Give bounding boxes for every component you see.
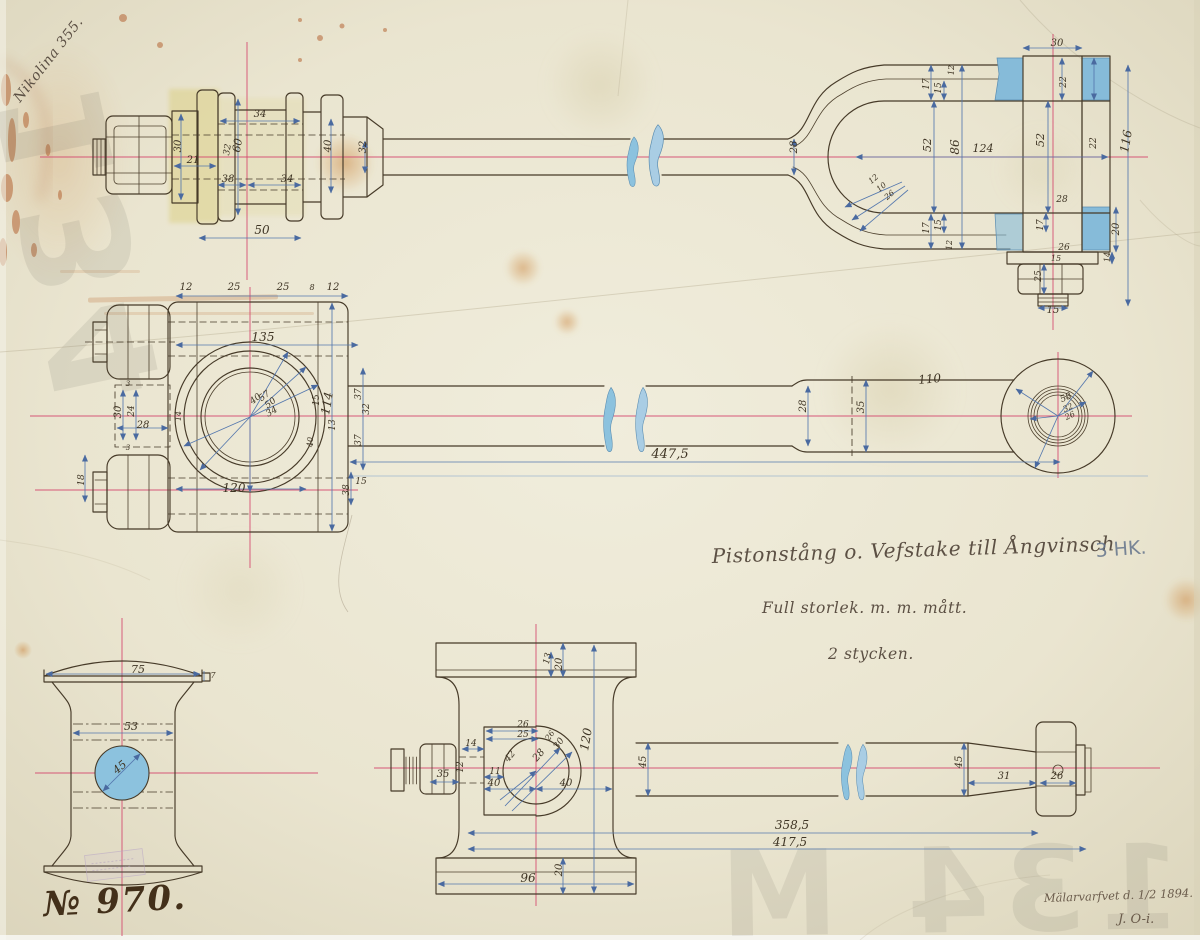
dimension-label: 110 <box>918 371 942 387</box>
dimension-label: 20 <box>554 657 565 671</box>
dimension-label: 37 <box>354 388 364 400</box>
dimension-label: 14 <box>1103 252 1112 262</box>
dimension-label: 22 <box>1059 76 1069 89</box>
dimension-label: 30 <box>173 139 184 152</box>
dimension-label: 124 <box>973 142 994 155</box>
dimension-label: 11 <box>489 767 500 777</box>
dimension-label: 31 <box>998 771 1011 782</box>
scale-note: Full storlek. m. m. mått. <box>761 599 967 617</box>
dimension-label: 18 <box>77 474 87 486</box>
dimension-label: 15 <box>1051 254 1061 263</box>
dimension-label: 17 <box>1036 219 1046 231</box>
dimension-label: 12 <box>945 240 954 250</box>
dimension-label: 21 <box>186 155 200 166</box>
dimension-label: 20 <box>1111 222 1122 236</box>
dimension-label: 32 <box>358 141 369 154</box>
dimension-label: 34 <box>281 174 294 185</box>
dimension-label: 26 <box>516 720 529 730</box>
dimension-label: 32 <box>362 403 372 415</box>
dimension-label: 52 <box>921 138 934 152</box>
dimension-label: 28 <box>798 400 809 414</box>
dimension-label: 20 <box>554 863 565 877</box>
dimension-label: 35 <box>856 401 867 414</box>
dimension-label: 86 <box>948 139 962 155</box>
quantity-note: 2 stycken. <box>827 645 914 663</box>
drawing-sheet: 134 134 M <box>0 0 1200 940</box>
dimension-label: 40 <box>487 778 501 789</box>
dimension-label: 135 <box>252 330 275 344</box>
dimension-label: 22 <box>1089 137 1099 150</box>
dimension-label: 45 <box>954 756 965 770</box>
dimension-label: 417,5 <box>772 835 807 849</box>
dimension-label: 3 <box>126 380 131 388</box>
drawing-number: № 970. <box>40 878 188 926</box>
dimension-label: 17 <box>922 222 932 234</box>
dimension-label: 12 <box>180 282 193 293</box>
dimension-label: 12 <box>947 65 956 75</box>
dimension-label: 447,5 <box>650 447 688 462</box>
dimension-label: 12 <box>456 761 466 773</box>
dimension-label: 13 <box>328 419 338 431</box>
dimension-label: 26 <box>1050 771 1064 782</box>
signature-initials: J. O-i. <box>1115 912 1154 927</box>
dimension-label: 25 <box>227 282 241 293</box>
dimension-label: 38 <box>222 174 235 185</box>
dimension-label: 26 <box>1057 243 1070 253</box>
dimension-label: 40 <box>323 139 334 153</box>
dimension-label: 34 <box>254 109 267 120</box>
dimension-label: 35 <box>437 769 450 780</box>
dimension-label: 50 <box>254 223 270 237</box>
dimension-label: 28 <box>789 141 800 155</box>
dimension-label: 120 <box>223 481 246 495</box>
dimension-label: 25 <box>276 282 290 293</box>
dimension-label: 45 <box>638 756 649 770</box>
dimension-label: 30 <box>113 405 124 418</box>
dimension-label: 15 <box>355 477 367 487</box>
dimension-label: 40 <box>559 778 573 789</box>
dimension-label: 25 <box>516 730 529 740</box>
dimension-label: 3 <box>126 444 131 452</box>
dimension-label: 52 <box>1034 133 1047 147</box>
dimension-label: 37 <box>354 434 364 446</box>
dimension-label: 32 <box>222 143 234 156</box>
dimension-label: 358,5 <box>775 818 809 832</box>
dimension-label: 30 <box>1051 38 1064 49</box>
dimension-label: 8 <box>309 283 314 292</box>
dimension-label: 28 <box>1055 195 1068 205</box>
dimension-label: 15 <box>1047 305 1060 316</box>
dimension-label: 96 <box>520 871 536 885</box>
dimension-label: 38 <box>342 484 352 496</box>
dimension-label: 40 <box>306 437 315 448</box>
dimension-label: 15 <box>934 219 944 231</box>
dimension-label: 17 <box>922 78 932 90</box>
power-note: 3 HK. <box>1095 536 1147 561</box>
dimension-label: 15 <box>934 82 944 94</box>
dimension-label: 25 <box>1034 270 1044 283</box>
dimension-label: 75 <box>131 663 145 676</box>
dimension-label: 24 <box>127 405 137 418</box>
dimension-label: 28 <box>136 420 150 431</box>
dimension-label: 14 <box>465 739 477 749</box>
dimension-label: 14 <box>174 411 183 421</box>
dimension-label: 53 <box>124 720 138 733</box>
dimension-label: 12 <box>327 282 340 293</box>
